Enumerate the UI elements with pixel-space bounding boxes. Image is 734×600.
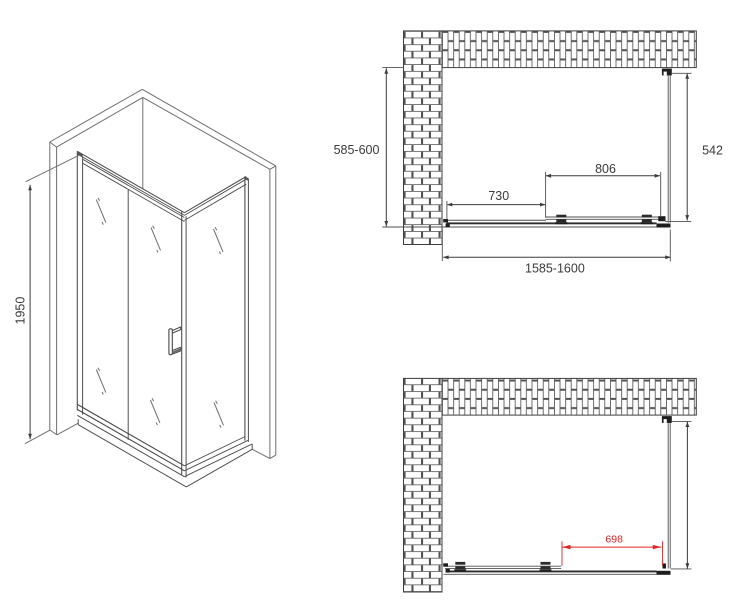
svg-text:585-600: 585-600: [334, 143, 380, 157]
svg-text:1950: 1950: [13, 297, 27, 325]
svg-text:806: 806: [595, 162, 616, 176]
svg-text:1585-1600: 1585-1600: [525, 261, 585, 275]
svg-text:698: 698: [605, 534, 623, 546]
svg-text:730: 730: [488, 189, 509, 203]
svg-text:542: 542: [702, 144, 723, 158]
